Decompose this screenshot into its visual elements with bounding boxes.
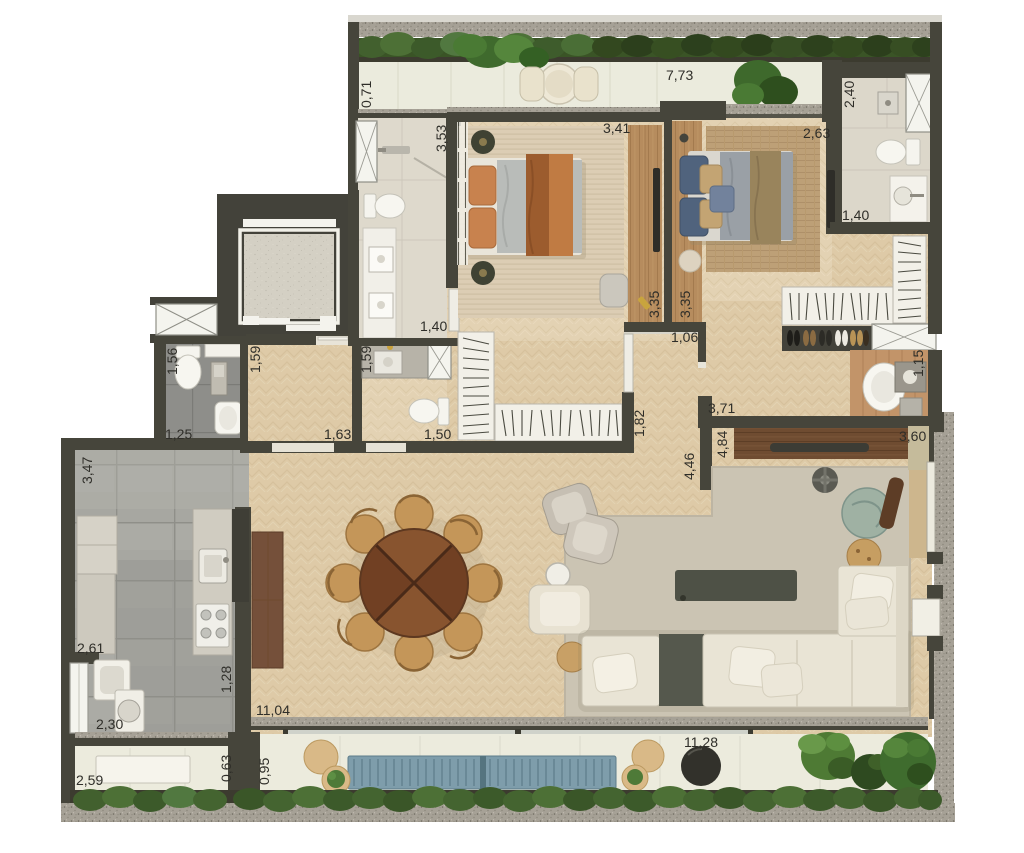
svg-text:3,47: 3,47: [79, 457, 95, 484]
svg-text:3,60: 3,60: [899, 428, 926, 444]
svg-text:2,30: 2,30: [96, 716, 123, 732]
svg-text:1,59: 1,59: [358, 346, 374, 373]
svg-text:1,25: 1,25: [165, 426, 192, 442]
svg-text:2,40: 2,40: [841, 81, 857, 108]
svg-text:1,56: 1,56: [164, 348, 180, 375]
svg-text:4,84: 4,84: [714, 431, 730, 458]
svg-text:2,61: 2,61: [77, 640, 104, 656]
svg-text:3,35: 3,35: [677, 291, 693, 318]
svg-text:3,35: 3,35: [646, 291, 662, 318]
svg-text:1,63: 1,63: [324, 426, 351, 442]
svg-text:11,28: 11,28: [684, 734, 718, 750]
svg-text:1,59: 1,59: [247, 346, 263, 373]
svg-text:4,46: 4,46: [681, 453, 697, 480]
svg-text:11,04: 11,04: [256, 702, 290, 718]
svg-text:1,15: 1,15: [910, 350, 926, 377]
svg-text:3,71: 3,71: [708, 400, 735, 416]
svg-text:2,59: 2,59: [76, 772, 103, 788]
svg-text:7,73: 7,73: [666, 67, 693, 83]
svg-text:1,50: 1,50: [424, 426, 451, 442]
svg-text:3,41: 3,41: [603, 120, 630, 136]
svg-text:2,63: 2,63: [803, 125, 830, 141]
svg-text:1,40: 1,40: [420, 318, 447, 334]
svg-text:1,82: 1,82: [631, 410, 647, 437]
svg-text:0,71: 0,71: [358, 81, 374, 108]
svg-text:1,06: 1,06: [671, 329, 698, 345]
svg-text:0,95: 0,95: [256, 758, 272, 785]
svg-text:1,40: 1,40: [842, 207, 869, 223]
svg-text:0,63: 0,63: [218, 755, 234, 782]
svg-text:1,28: 1,28: [218, 666, 234, 693]
svg-text:3,53: 3,53: [433, 125, 449, 152]
